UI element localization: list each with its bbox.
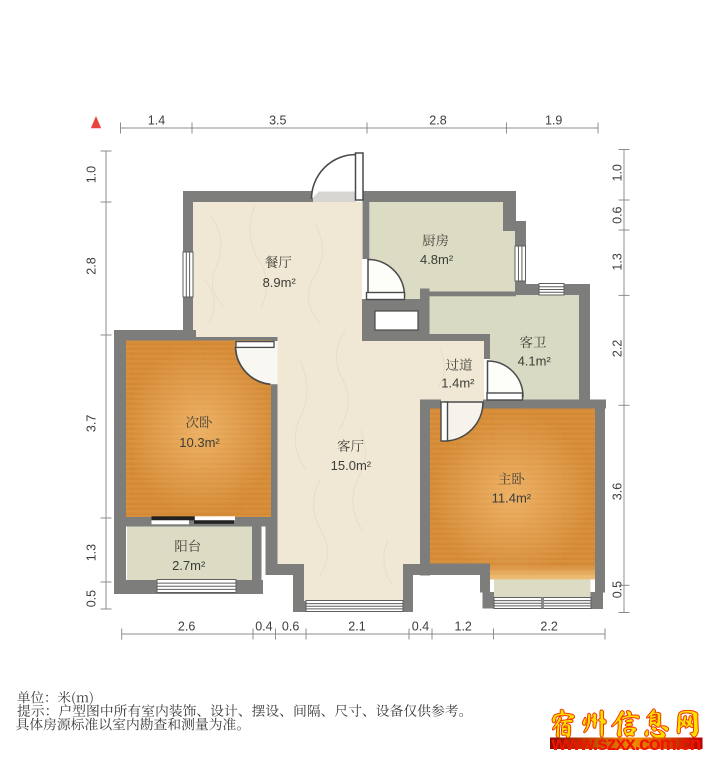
svg-text:2.2: 2.2 — [540, 620, 557, 634]
svg-text:1.0: 1.0 — [85, 166, 99, 183]
svg-text:1.3: 1.3 — [611, 253, 625, 270]
svg-text:0.5: 0.5 — [611, 581, 625, 598]
svg-text:8.9m²: 8.9m² — [263, 275, 297, 290]
svg-text:2.1: 2.1 — [348, 620, 365, 634]
svg-text:0.5: 0.5 — [85, 590, 99, 607]
svg-text:4.8m²: 4.8m² — [420, 252, 454, 267]
svg-text:2.7m²: 2.7m² — [172, 558, 206, 573]
svg-text:1.4: 1.4 — [148, 114, 165, 128]
svg-text:www.szxx.com.cn: www.szxx.com.cn — [551, 733, 702, 755]
svg-text:2.8: 2.8 — [85, 257, 99, 274]
svg-text:3.7: 3.7 — [85, 415, 99, 432]
svg-text:10.3m²: 10.3m² — [179, 435, 220, 450]
svg-text:1.0: 1.0 — [611, 164, 625, 181]
svg-text:2.8: 2.8 — [429, 114, 446, 128]
svg-text:1.3: 1.3 — [85, 544, 99, 561]
svg-text:1.9: 1.9 — [545, 114, 562, 128]
svg-text:3.6: 3.6 — [611, 483, 625, 500]
svg-text:0.4: 0.4 — [255, 620, 272, 634]
svg-text:2.2: 2.2 — [611, 340, 625, 357]
svg-text:11.4m²: 11.4m² — [492, 490, 532, 505]
svg-text:4.1m²: 4.1m² — [518, 353, 552, 368]
svg-text:0.6: 0.6 — [282, 620, 299, 634]
svg-text:0.4: 0.4 — [412, 620, 429, 634]
svg-text:3.5: 3.5 — [269, 114, 286, 128]
svg-text:15.0m²: 15.0m² — [331, 458, 372, 473]
svg-text:1.2: 1.2 — [455, 620, 472, 634]
svg-text:2.6: 2.6 — [178, 620, 195, 634]
svg-text:0.6: 0.6 — [611, 206, 625, 223]
svg-text:1.4m²: 1.4m² — [441, 376, 475, 391]
